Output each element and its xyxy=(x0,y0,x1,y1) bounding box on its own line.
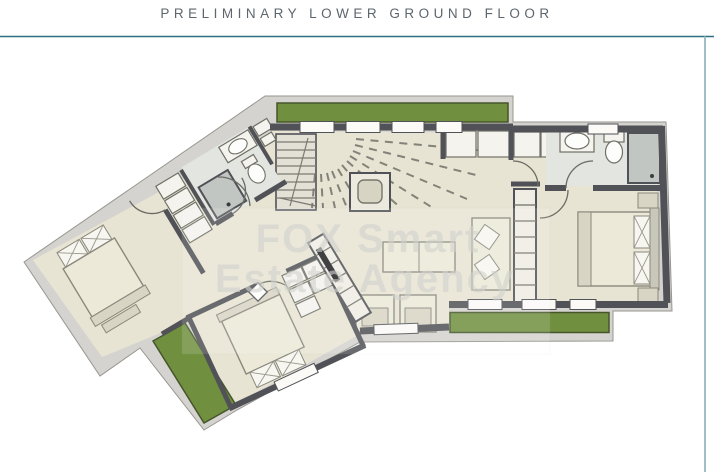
page: PRELIMINARY LOWER GROUND FLOOR xyxy=(0,0,714,472)
nightstand xyxy=(638,193,658,208)
planter-top xyxy=(277,103,508,122)
shower-icon xyxy=(628,133,660,183)
floor-plan: FOX Smart Estate Agency xyxy=(0,0,714,472)
fireplace xyxy=(350,173,390,211)
watermark-line2: Estate Agency xyxy=(215,257,515,301)
sink-icon xyxy=(565,133,589,149)
watermark-line1: FOX Smart xyxy=(256,217,481,261)
nightstand xyxy=(638,288,658,303)
toilet-icon xyxy=(606,141,623,163)
watermark: FOX Smart Estate Agency xyxy=(182,208,550,354)
stairs xyxy=(276,134,316,210)
bathroom-2 xyxy=(546,130,660,186)
